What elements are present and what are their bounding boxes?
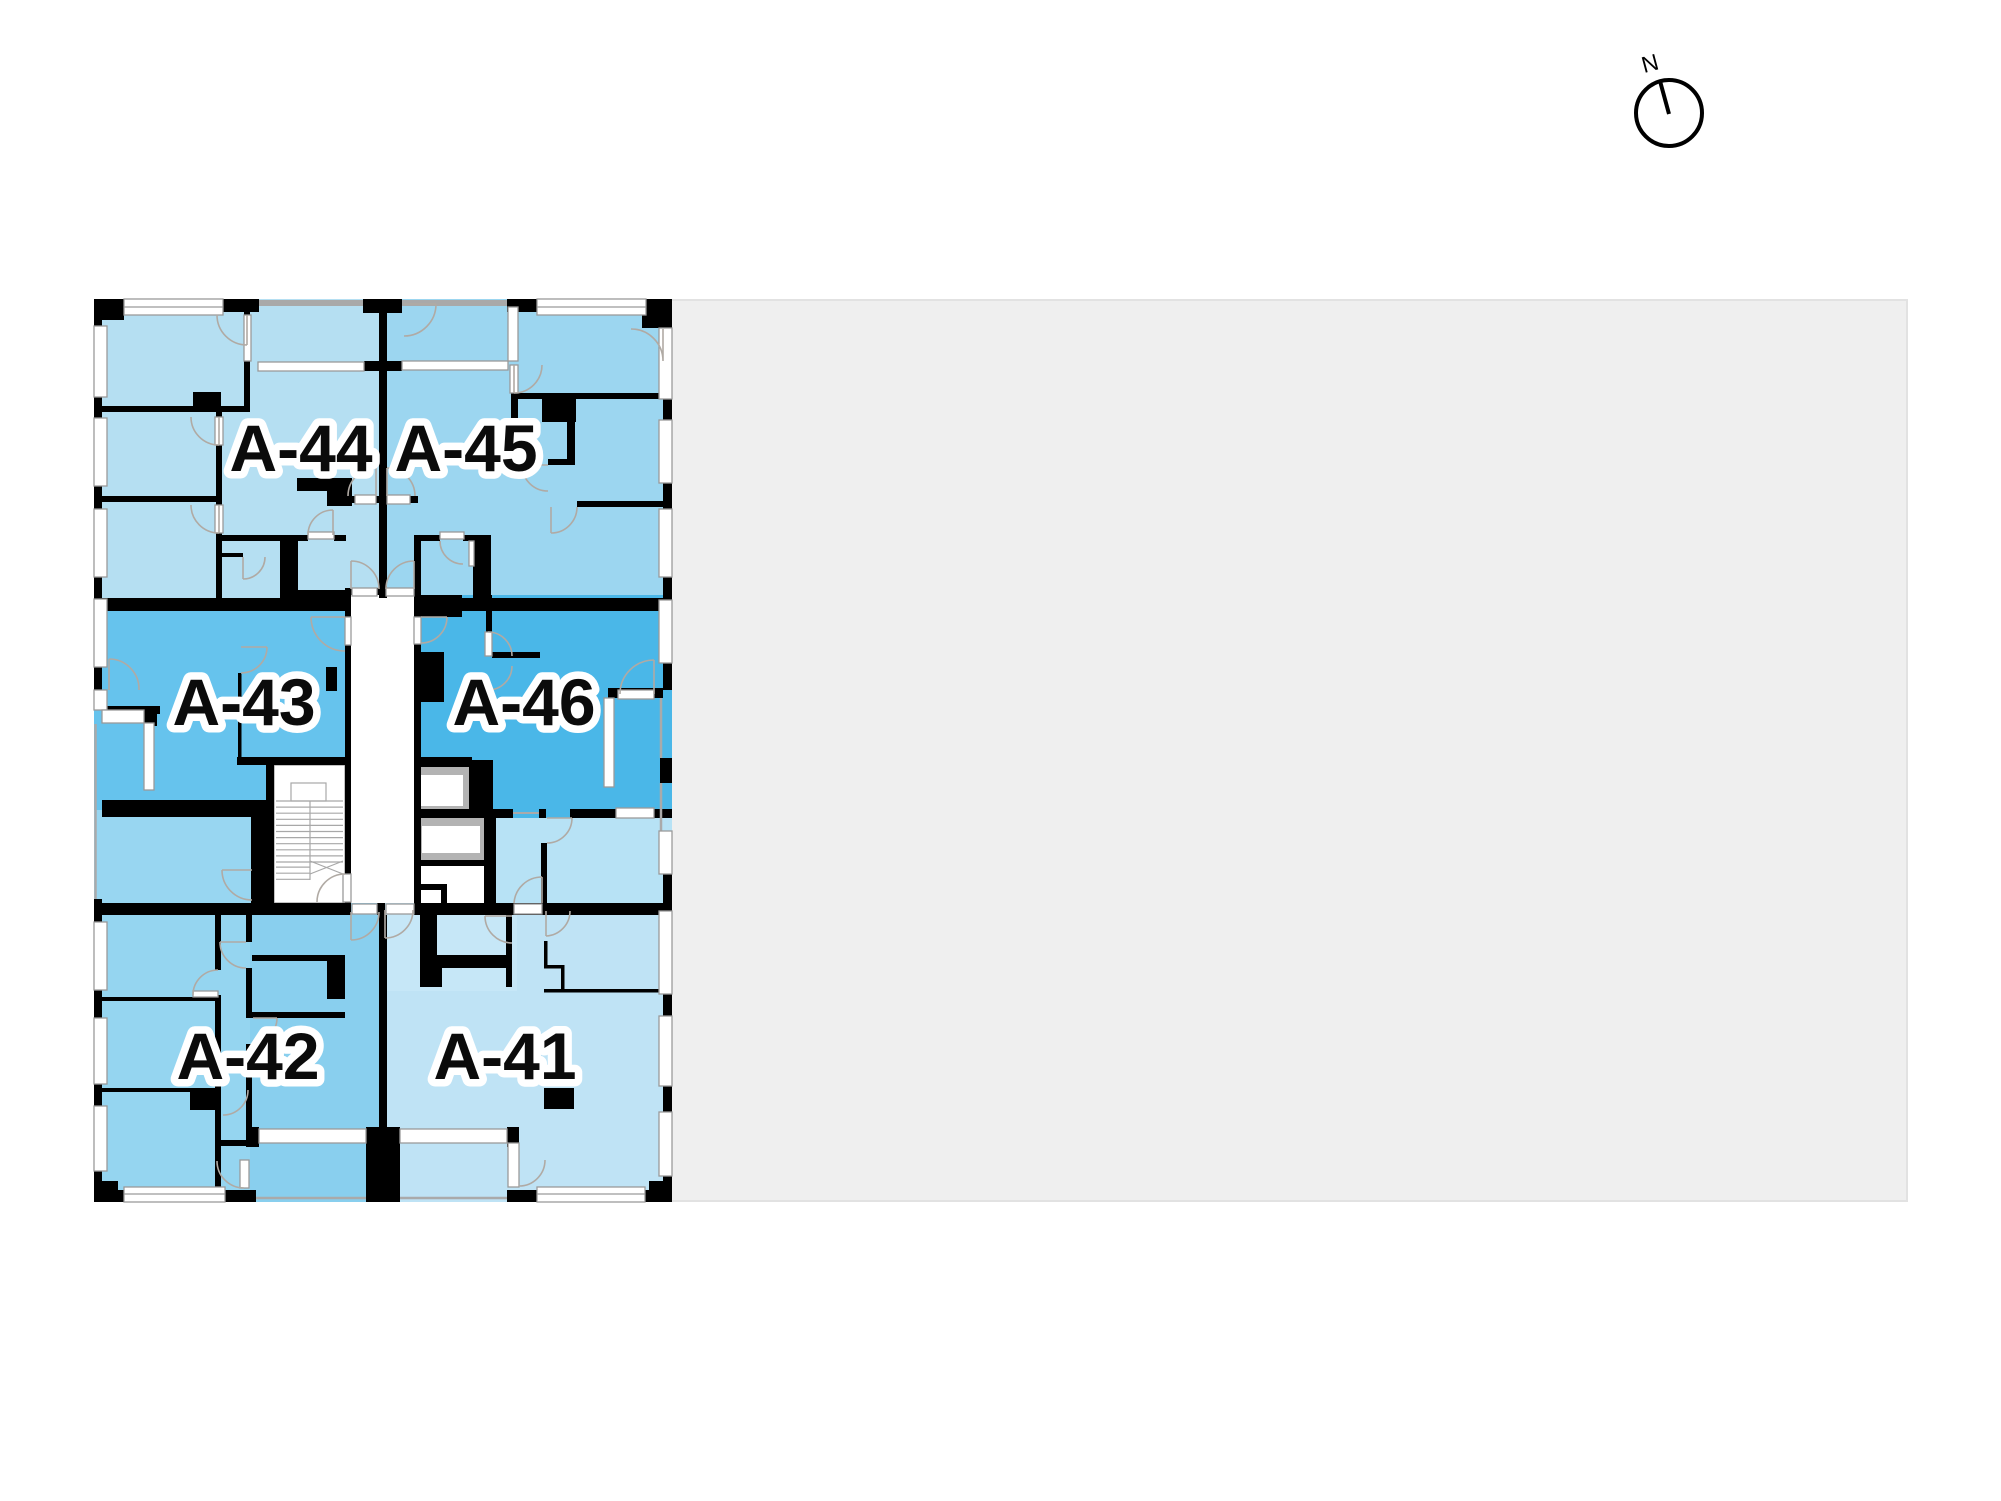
svg-text:A-44: A-44: [229, 411, 372, 485]
svg-text:A-46: A-46: [452, 665, 595, 739]
svg-text:A-41: A-41: [433, 1019, 576, 1093]
svg-text:A-43: A-43: [172, 665, 315, 739]
svg-text:A-45: A-45: [394, 411, 537, 485]
svg-text:A-42: A-42: [176, 1019, 319, 1093]
